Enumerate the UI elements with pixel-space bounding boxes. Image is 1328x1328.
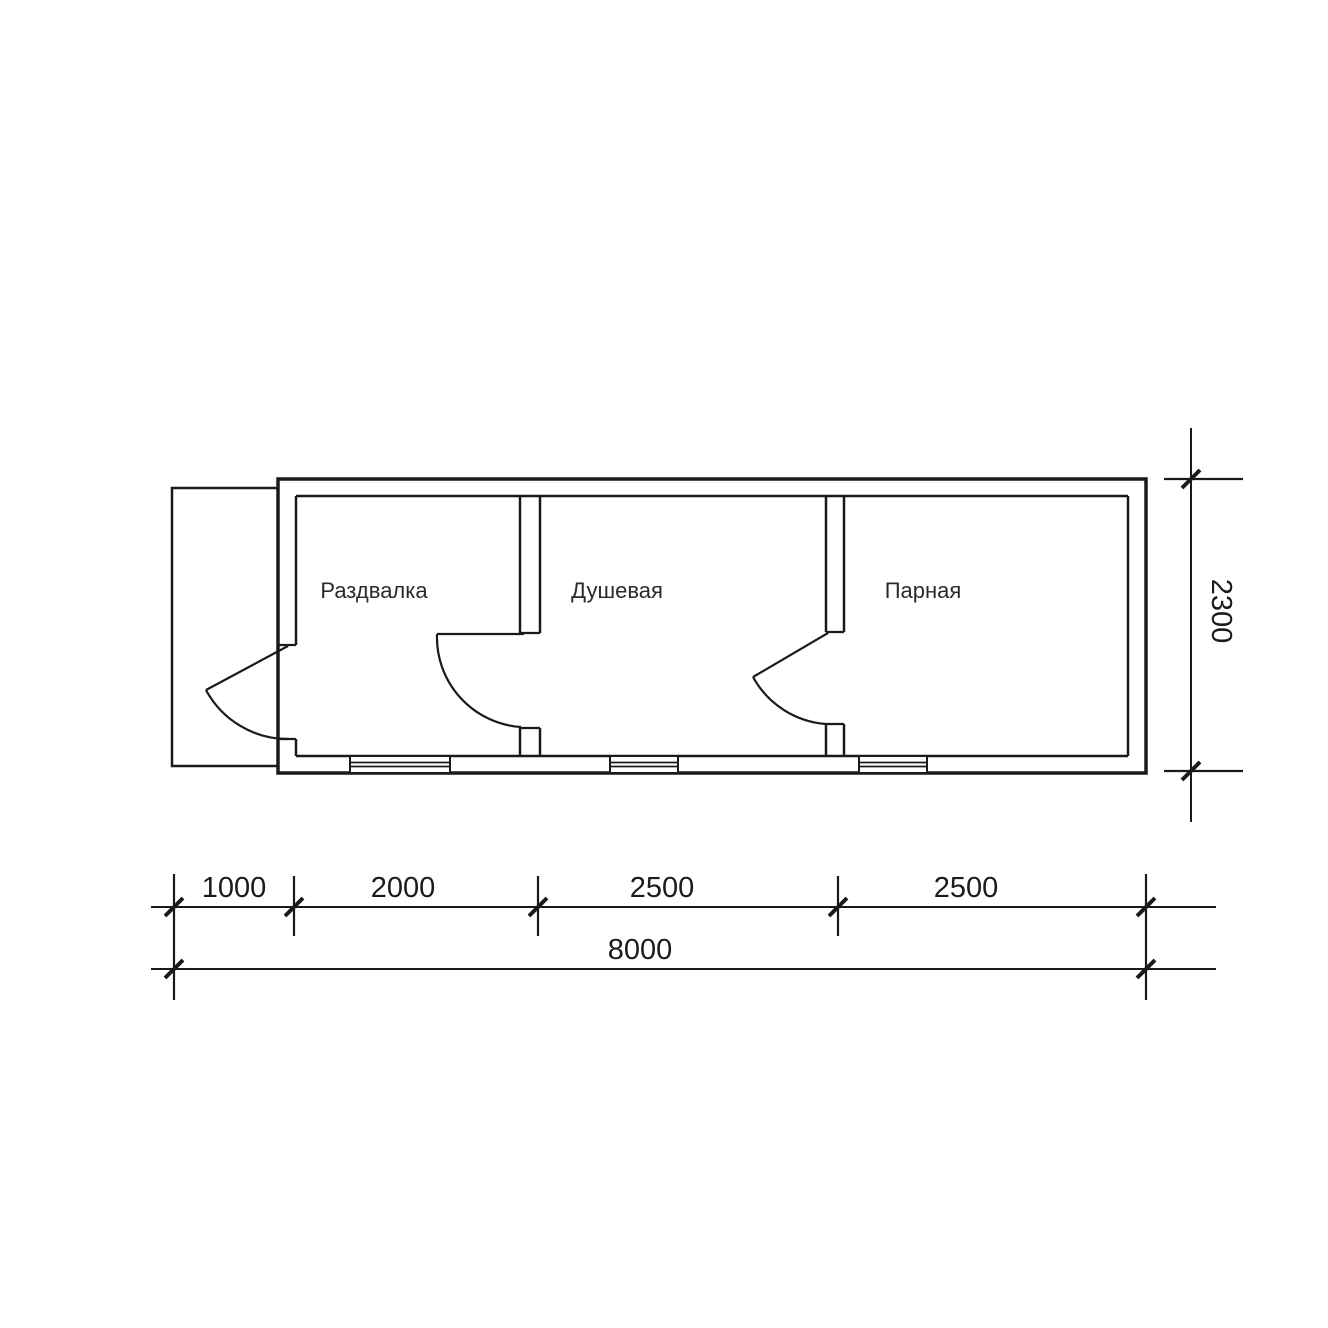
dim-segment-3: 2500 <box>630 872 695 904</box>
room-1-label: Раздвалка <box>320 578 428 603</box>
dim-segment-2: 2000 <box>371 872 436 904</box>
window-2-frame <box>610 756 678 773</box>
dim-segment-1: 1000 <box>202 872 267 904</box>
window-1-frame <box>350 756 450 773</box>
building-walls <box>278 479 1146 773</box>
room-2-label: Душевая <box>571 578 663 603</box>
entrance-door-leaf <box>206 646 288 690</box>
dimension-bottom-labels: 1000 2000 2500 2500 8000 <box>202 872 999 966</box>
window-2 <box>610 756 678 773</box>
dimension-bottom: 1000 2000 2500 2500 8000 <box>151 872 1216 1000</box>
window-1 <box>350 756 450 773</box>
dim-total-width: 8000 <box>608 934 673 966</box>
dimension-right: 2300 <box>1164 428 1243 822</box>
dim-height: 2300 <box>1205 579 1237 644</box>
room-3-label: Парная <box>885 578 962 603</box>
entrance-door-swing-arc <box>206 690 288 739</box>
porch-outline <box>172 488 278 766</box>
window-3 <box>859 756 927 773</box>
floorplan-canvas: Раздвалка Душевая Парная <box>0 0 1328 1328</box>
floor-plan-drawing: Раздвалка Душевая Парная <box>0 0 1328 1328</box>
porch <box>172 488 278 766</box>
dim-segment-4: 2500 <box>934 872 999 904</box>
window-3-frame <box>859 756 927 773</box>
exterior-wall-outline <box>278 479 1146 773</box>
